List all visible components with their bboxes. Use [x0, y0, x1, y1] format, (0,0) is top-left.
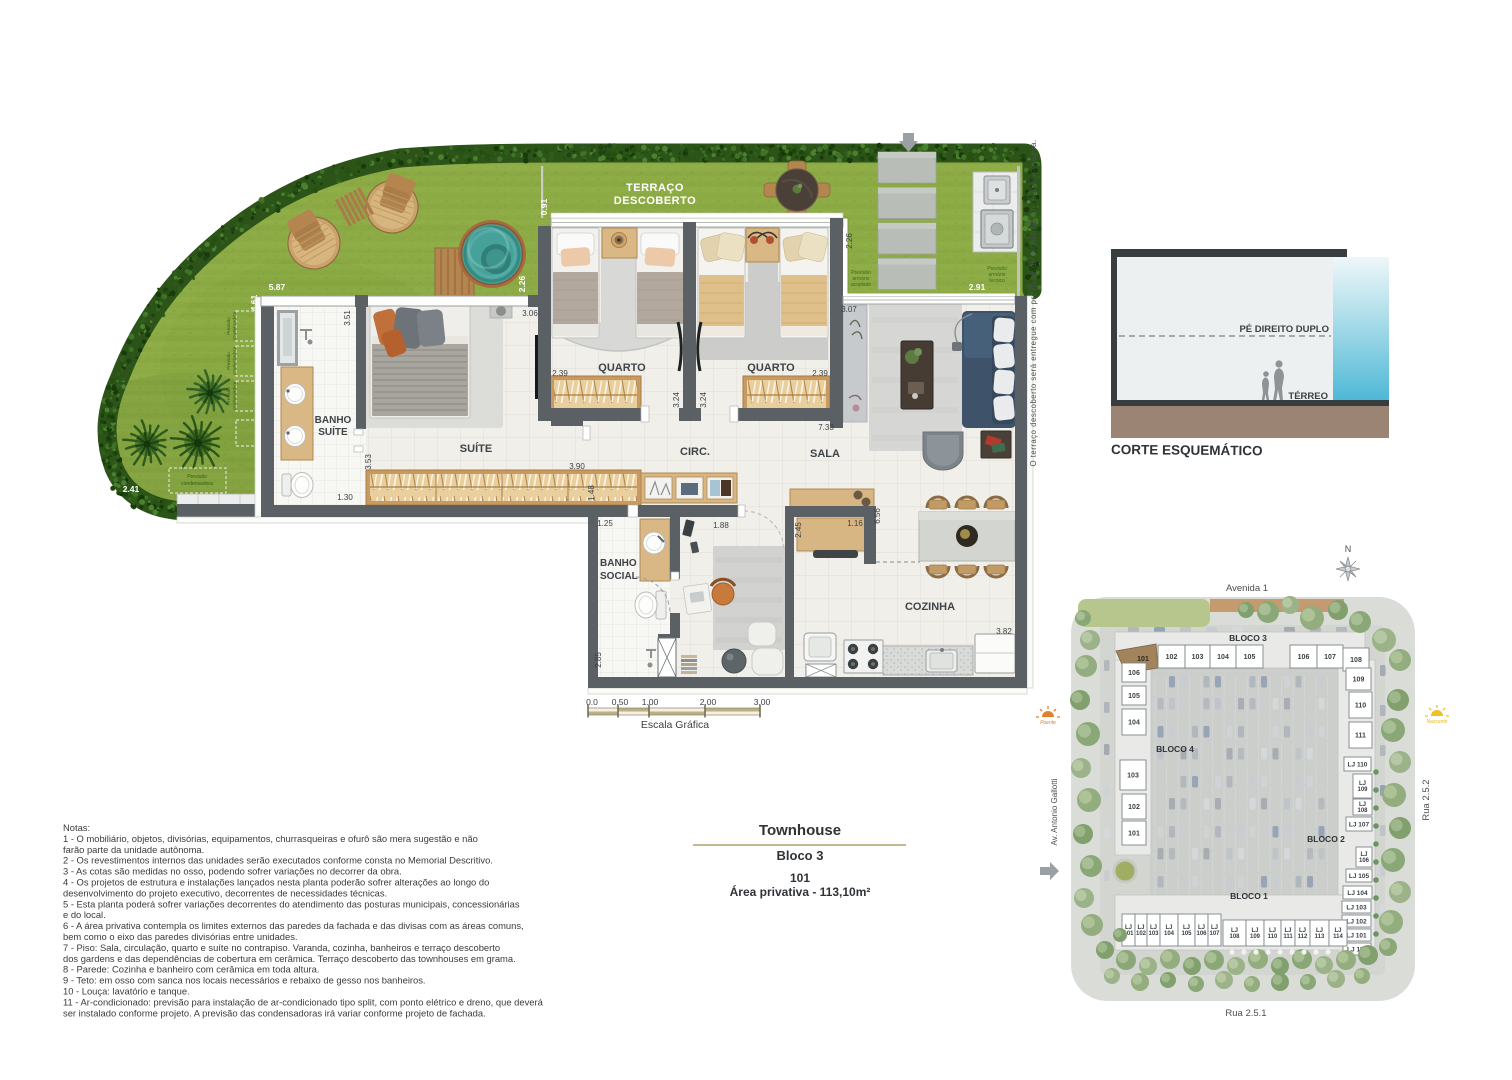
svg-text:BLOCO 2: BLOCO 2 [1307, 834, 1345, 844]
svg-text:102: 102 [1136, 931, 1147, 937]
svg-text:2.00: 2.00 [700, 697, 717, 707]
svg-text:farão parte da unidade autônom: farão parte da unidade autônoma. [63, 844, 204, 855]
svg-text:BLOCO 1: BLOCO 1 [1230, 891, 1268, 901]
svg-text:Rua 2.5.1: Rua 2.5.1 [1225, 1008, 1266, 1019]
svg-text:109: 109 [1250, 934, 1261, 940]
svg-text:acoplado: acoplado [851, 282, 872, 288]
svg-text:bem como o eixo das paredes di: bem como o eixo das paredes divisórias e… [63, 931, 298, 942]
svg-text:LJ 107: LJ 107 [1349, 821, 1370, 828]
svg-text:10 - Louça: lavatório e tanque: 10 - Louça: lavatório e tanque. [63, 986, 190, 997]
svg-text:ser instalado conforme projeto: ser instalado conforme projeto. A previs… [63, 1007, 486, 1018]
svg-text:Rua 2.5.2: Rua 2.5.2 [1421, 779, 1432, 820]
svg-text:Previsão: Previsão [226, 317, 231, 335]
svg-text:QUARTO: QUARTO [747, 362, 795, 374]
svg-text:5.87: 5.87 [269, 282, 286, 292]
svg-text:LJ 104: LJ 104 [1347, 890, 1368, 897]
svg-text:LJ 103: LJ 103 [1346, 904, 1367, 911]
svg-text:105: 105 [1181, 931, 1192, 937]
svg-text:Notas:: Notas: [63, 822, 90, 833]
svg-text:0.0: 0.0 [586, 697, 598, 707]
svg-text:O terraço descoberto será entr: O terraço descoberto será entregue com p… [1029, 140, 1038, 467]
svg-text:3.07: 3.07 [841, 305, 857, 314]
svg-text:1.88: 1.88 [713, 521, 729, 530]
svg-text:1.48: 1.48 [587, 485, 596, 501]
svg-text:11 - Ar-condicionado: previsão: 11 - Ar-condicionado: previsão para inst… [63, 996, 544, 1007]
svg-text:113: 113 [1315, 934, 1325, 940]
svg-text:104: 104 [1217, 654, 1229, 661]
svg-text:109: 109 [1353, 677, 1365, 684]
svg-text:3.24: 3.24 [699, 392, 708, 408]
svg-text:Townhouse: Townhouse [759, 822, 841, 839]
svg-text:3.90: 3.90 [569, 462, 585, 471]
svg-text:104: 104 [1164, 931, 1175, 937]
svg-text:106: 106 [1196, 931, 1207, 937]
svg-text:106: 106 [1128, 670, 1140, 677]
svg-text:Av. Antonio Gallotti: Av. Antonio Gallotti [1050, 778, 1059, 845]
svg-text:101: 101 [1128, 831, 1140, 838]
svg-text:103: 103 [1127, 773, 1139, 780]
svg-text:107: 107 [1209, 931, 1220, 937]
svg-text:Nascente: Nascente [1426, 719, 1447, 725]
svg-text:1 - O mobiliário, objetos, div: 1 - O mobiliário, objetos, divisórias, e… [63, 833, 478, 844]
svg-text:BANHO: BANHO [315, 415, 352, 426]
svg-text:114: 114 [1333, 934, 1343, 940]
svg-text:7 - Piso: Sala, circulação, qu: 7 - Piso: Sala, circulação, quarto e suí… [63, 942, 500, 953]
svg-text:técnico: técnico [989, 278, 1005, 284]
svg-text:LJ 105: LJ 105 [1349, 873, 1370, 880]
svg-text:Previsão: Previsão [226, 387, 231, 405]
svg-text:0.91: 0.91 [539, 198, 549, 215]
svg-text:102: 102 [1128, 804, 1140, 811]
svg-text:DESCOBERTO: DESCOBERTO [614, 195, 696, 207]
svg-text:107: 107 [1324, 654, 1336, 661]
svg-text:1.16: 1.16 [847, 519, 863, 528]
svg-text:3.06: 3.06 [522, 309, 538, 318]
svg-text:2.85: 2.85 [594, 652, 603, 668]
svg-text:110: 110 [1268, 934, 1278, 940]
svg-text:N: N [1345, 544, 1352, 554]
svg-text:SALA: SALA [810, 448, 840, 460]
svg-text:COZINHA: COZINHA [905, 601, 955, 613]
svg-text:QUARTO: QUARTO [598, 362, 646, 374]
svg-text:condensadora: condensadora [232, 311, 237, 340]
svg-text:2.39: 2.39 [552, 369, 568, 378]
svg-text:2.91: 2.91 [969, 282, 986, 292]
svg-text:106: 106 [1298, 654, 1310, 661]
svg-text:PÉ DIREITO DUPLO: PÉ DIREITO DUPLO [1239, 324, 1329, 335]
svg-text:6 - A área privativa contempla: 6 - A área privativa contempla os limite… [63, 920, 524, 931]
svg-text:Escala Gráfica: Escala Gráfica [641, 719, 709, 731]
svg-text:BLOCO 3: BLOCO 3 [1229, 633, 1267, 643]
svg-text:108: 108 [1357, 808, 1368, 814]
svg-text:CIRC.: CIRC. [680, 446, 710, 458]
svg-text:2.39: 2.39 [812, 369, 828, 378]
svg-text:Previsão: Previsão [226, 352, 231, 370]
svg-text:108: 108 [1350, 657, 1362, 664]
svg-text:LJ 110: LJ 110 [1348, 761, 1368, 768]
svg-text:0.50: 0.50 [612, 697, 629, 707]
svg-text:111: 111 [1355, 733, 1366, 740]
svg-text:110: 110 [1355, 703, 1366, 710]
svg-text:105: 105 [1128, 693, 1140, 700]
svg-text:condensadora: condensadora [232, 381, 237, 410]
svg-text:BLOCO 4: BLOCO 4 [1156, 744, 1194, 754]
svg-text:CORTE ESQUEMÁTICO: CORTE ESQUEMÁTICO [1111, 442, 1263, 458]
svg-text:e do local.: e do local. [63, 909, 106, 920]
svg-text:desenvolvimento do projeto exe: desenvolvimento do projeto executivo, de… [63, 887, 387, 898]
svg-text:9 - Teto: em osso com sanca no: 9 - Teto: em osso com sanca nos locais n… [63, 975, 426, 986]
svg-text:3.82: 3.82 [996, 627, 1012, 636]
svg-text:2.45: 2.45 [794, 522, 803, 538]
svg-text:7.33: 7.33 [818, 423, 834, 432]
svg-text:SUÍTE: SUÍTE [460, 442, 492, 455]
svg-text:3.00: 3.00 [754, 697, 771, 707]
svg-text:condensadora: condensadora [181, 481, 213, 487]
svg-text:LJ 101: LJ 101 [1346, 932, 1367, 939]
svg-text:106: 106 [1359, 858, 1370, 864]
svg-text:109: 109 [1357, 787, 1368, 793]
svg-text:111: 111 [1283, 934, 1293, 940]
svg-text:3.24: 3.24 [672, 392, 681, 408]
svg-text:101: 101 [1137, 656, 1149, 663]
svg-text:104: 104 [1128, 720, 1140, 727]
svg-text:8 - Parede: Cozinha e banheiro: 8 - Parede: Cozinha e banheiro com cerâm… [63, 964, 319, 975]
svg-text:2.26: 2.26 [845, 233, 854, 249]
svg-text:5 - Esta planta poderá sofrer: 5 - Esta planta poderá sofrer variações … [63, 898, 520, 909]
svg-text:LJ 102: LJ 102 [1346, 918, 1367, 925]
svg-text:TERRAÇO: TERRAÇO [626, 182, 684, 194]
svg-text:1.00: 1.00 [642, 697, 659, 707]
svg-text:Avenida 1: Avenida 1 [1226, 583, 1268, 594]
svg-text:1.25: 1.25 [597, 519, 613, 528]
svg-text:2 - Os revestimentos internos: 2 - Os revestimentos internos das unidad… [63, 855, 493, 866]
svg-text:108: 108 [1229, 934, 1240, 940]
svg-text:2.41: 2.41 [123, 484, 140, 494]
svg-text:3.51: 3.51 [343, 310, 352, 326]
svg-text:dos gardens e das dependências: dos gardens e das dependências de cobert… [63, 953, 516, 964]
svg-text:6.56: 6.56 [873, 508, 882, 524]
svg-text:3 - As cotas são medidas no os: 3 - As cotas são medidas no osso, podend… [63, 866, 402, 877]
svg-text:112: 112 [1298, 934, 1308, 940]
svg-text:3.53: 3.53 [364, 454, 373, 470]
svg-text:condensadora: condensadora [232, 346, 237, 375]
svg-text:Poente: Poente [1040, 720, 1056, 726]
svg-text:1.30: 1.30 [337, 493, 353, 502]
svg-text:4 - Os projetos de estrutura e: 4 - Os projetos de estrutura e instalaçõ… [63, 877, 489, 888]
svg-text:SUÍTE: SUÍTE [318, 425, 348, 438]
svg-text:103: 103 [1148, 931, 1159, 937]
svg-text:BANHO: BANHO [600, 558, 637, 569]
svg-text:102: 102 [1166, 654, 1178, 661]
svg-text:103: 103 [1192, 654, 1204, 661]
svg-text:105: 105 [1244, 654, 1256, 661]
svg-text:2.26: 2.26 [517, 275, 527, 292]
svg-text:101: 101 [790, 871, 810, 885]
svg-text:Área privativa - 113,10m²: Área privativa - 113,10m² [730, 884, 871, 899]
svg-text:SOCIAL: SOCIAL [600, 571, 638, 582]
svg-text:Bloco 3: Bloco 3 [777, 848, 824, 863]
svg-text:Previsão: Previsão [187, 474, 207, 480]
